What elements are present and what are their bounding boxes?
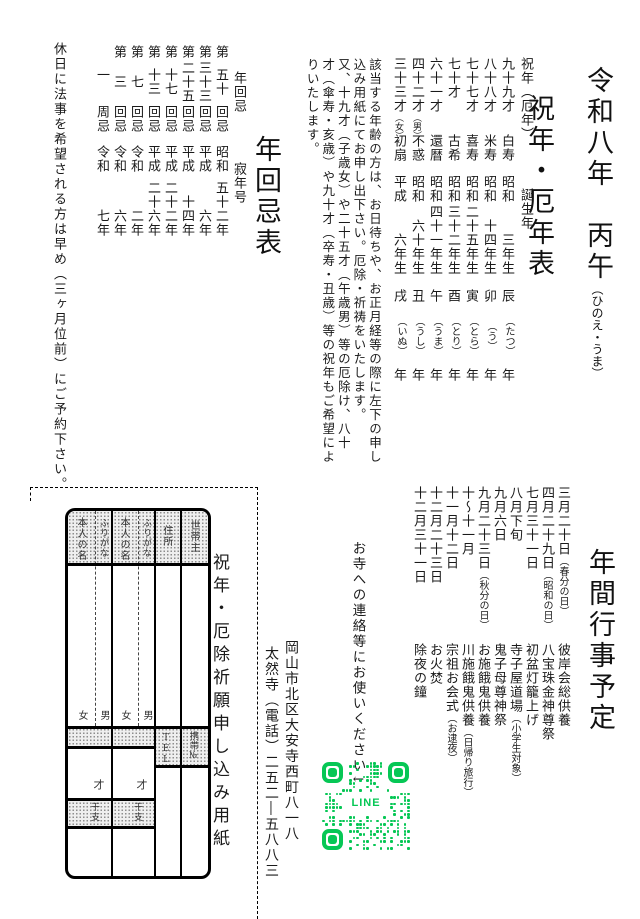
form-row-border [68, 726, 208, 729]
qr-module [363, 823, 366, 826]
zodiac-year: 戌（いぬ）年 [392, 289, 405, 382]
qr-module [383, 840, 386, 843]
event-date: 四月二十九日（昭和の日） [540, 486, 553, 630]
qr-module [359, 779, 362, 782]
kaiki-row: 第二十五回忌 平成十四年 [178, 45, 195, 245]
qr-module [325, 803, 328, 806]
qr-module [383, 833, 386, 836]
age-table-row: 七十才 古希 昭和三十二年生 酉（とり）年 [444, 57, 462, 392]
qr-module [370, 765, 373, 768]
age-value: 七十七才 [464, 57, 477, 113]
age-value: 六十一才 [428, 57, 441, 113]
qr-module [376, 772, 379, 775]
qr-module [349, 820, 352, 823]
birth-year: 昭和四十一年生 [428, 175, 441, 275]
temple-flyer-page: 令和八年 丙午（ひのえ・うま） 祝年・厄年表 祝年（厄年） 誕生年 九十九才 白… [0, 0, 640, 919]
qr-module [356, 830, 359, 833]
qr-module [329, 820, 332, 823]
qr-module [380, 772, 383, 775]
qr-module [366, 840, 369, 843]
zodiac-year: 寅（とら）年 [464, 289, 477, 382]
qr-module [370, 820, 373, 823]
qr-module [397, 844, 400, 847]
kaiki-name: 第五十回忌 [214, 45, 227, 133]
notice-paragraph: 該当する年齢の方は、お日待ちや、お正月経等の際に左下の申し 込み用紙にてお申し出… [304, 58, 382, 464]
qr-module [390, 796, 393, 799]
qr-module [366, 820, 369, 823]
qr-module [329, 816, 332, 819]
qr-module [349, 816, 352, 819]
event-date: 八月下旬 [508, 486, 521, 542]
qr-module [390, 840, 393, 843]
qr-module [373, 782, 376, 785]
qr-module [353, 782, 356, 785]
qr-module [325, 806, 328, 809]
qr-module [339, 823, 342, 826]
event-name: お施餓鬼供養 [476, 643, 489, 727]
age-table-row: 四十二才（男） 不惑 昭和六十年生 丑（うし）年 [408, 57, 426, 392]
kaiki-row: 第七回忌 令和二年 [127, 45, 144, 245]
kaiki-name: 第十三回忌 [146, 45, 159, 133]
qr-module [356, 837, 359, 840]
qr-module [380, 830, 383, 833]
kaiki-year: 令和二年 [129, 145, 142, 237]
event-date: 十～十一月 [460, 486, 473, 556]
age-table-row: 八十八才 米寿 昭和十四年生 卯（う）年 [480, 57, 498, 392]
qr-module [407, 799, 410, 802]
qr-module [366, 847, 369, 850]
qr-module [370, 833, 373, 836]
qr-module [390, 806, 393, 809]
qr-module [349, 830, 352, 833]
qr-module [390, 847, 393, 850]
qr-module [397, 820, 400, 823]
qr-module [363, 840, 366, 843]
qr-module [336, 806, 339, 809]
qr-module [363, 833, 366, 836]
zodiac-year: 酉（とり）年 [446, 289, 459, 382]
kaiki-row: 第三回忌 令和六年 [110, 45, 127, 245]
line-contact-note: お寺への連絡等にお使いください↓ [350, 541, 364, 787]
event-name: お火焚 [428, 643, 441, 685]
zodiac-year: 卯（う）年 [482, 289, 495, 382]
qr-module [370, 772, 373, 775]
form-label-furigana: ふりがな [141, 518, 150, 558]
age-table-row: 三十三才（女） 初扇 平成六年生 戌（いぬ）年 [390, 57, 408, 392]
qr-module [397, 823, 400, 826]
birth-year: 昭和六十年生 [410, 175, 423, 275]
qr-module [349, 765, 352, 768]
age-value: 七十才 [446, 57, 459, 99]
qr-module [407, 803, 410, 806]
qr-module [373, 833, 376, 836]
qr-module [407, 837, 410, 840]
age-table-row: 七十七才 喜寿 昭和二十五年生 寅（とら）年 [462, 57, 480, 392]
age-table-header-col: 祝年（厄年） 誕生年 [517, 57, 535, 392]
celebration-name: 不惑 [410, 134, 423, 162]
qr-module [363, 776, 366, 779]
qr-module [393, 820, 396, 823]
qr-module [404, 823, 407, 826]
form-label-furigana: ふりがな [98, 518, 107, 558]
form-col-border [154, 511, 156, 876]
qr-module [387, 820, 390, 823]
qr-module [376, 765, 379, 768]
age-table-header-top: 祝年（厄年） [519, 57, 532, 141]
qr-module [407, 810, 410, 813]
era-title: 令和八年 丙午（ひのえ・うま） [584, 66, 611, 379]
qr-module [332, 823, 335, 826]
qr-module [356, 844, 359, 847]
qr-module [400, 816, 403, 819]
event-item: 七月三十一日 初盆灯籠上げ [523, 486, 539, 906]
event-item: 九月二十三日（秋分の日） お施餓鬼供養 [475, 486, 491, 906]
qr-module [359, 823, 362, 826]
birth-year: 昭和三十二年生 [446, 175, 459, 275]
qr-module [376, 830, 379, 833]
event-date: 九月六日 [492, 486, 505, 542]
qr-module [397, 796, 400, 799]
qr-module [356, 769, 359, 772]
age-table-row: 六十一才 還暦 昭和四十一年生 午（うま）年 [426, 57, 444, 392]
event-item: 四月二十九日（昭和の日） 八宝珠金神尊祭 [539, 486, 555, 906]
temple-name-phone: 太然寺（電話）二五二―五八八三 [264, 646, 278, 879]
qr-module [373, 776, 376, 779]
qr-module [380, 765, 383, 768]
qr-module [390, 837, 393, 840]
qr-module [404, 827, 407, 830]
qr-module [353, 830, 356, 833]
qr-module [390, 803, 393, 806]
event-date: 十二月二十三日 [428, 486, 441, 584]
event-name: 鬼子母尊神祭 [492, 643, 505, 727]
qr-module [376, 827, 379, 830]
age-value: 九十九才 [500, 57, 513, 113]
qr-module [346, 820, 349, 823]
kaiki-row: 第五十回忌 昭和五十二年 [212, 45, 229, 245]
kaiki-header-col: 年回忌 寂年号 [230, 45, 247, 245]
qr-module [359, 820, 362, 823]
event-name: 除夜の鐘 [412, 643, 425, 699]
kaiki-name: 一周忌 [95, 45, 108, 133]
qr-module [387, 789, 390, 792]
qr-module [390, 820, 393, 823]
qr-module [363, 827, 366, 830]
kaiki-year: 平成十四年 [180, 145, 193, 237]
qr-module [356, 823, 359, 826]
qr-module [339, 820, 342, 823]
qr-module [393, 830, 396, 833]
age-table-header-bottom: 誕生年 [519, 188, 532, 230]
kaiki-year: 平成二十二年 [163, 145, 176, 237]
era-title-ruby: （ひのえ・うま） [590, 283, 604, 379]
qr-module [356, 762, 359, 765]
form-col-border [111, 511, 113, 876]
qr-module [373, 772, 376, 775]
kaiki-year: 昭和五十二年 [214, 145, 227, 237]
kaiki-name: 第二十五回忌 [180, 45, 193, 133]
kaiki-year: 令和七年 [95, 145, 108, 237]
zodiac-year: 午（うま）年 [428, 289, 441, 382]
birth-year: 平成六年生 [392, 175, 405, 275]
event-name: 八宝珠金神尊祭 [540, 643, 553, 741]
furigana-divider [95, 511, 96, 726]
qr-module [349, 840, 352, 843]
qr-module [400, 840, 403, 843]
form-gender-male: 男 [98, 710, 108, 721]
form-zodiac-label: 干支 [89, 802, 98, 822]
qr-module [383, 816, 386, 819]
qr-module [400, 803, 403, 806]
qr-module [370, 779, 373, 782]
zodiac-year: 丑（うし）年 [410, 289, 423, 382]
kaiki-name: 第七回忌 [129, 45, 142, 133]
event-date: 三月二十日（春分の日） [556, 486, 569, 616]
qr-module [349, 782, 352, 785]
qr-module [339, 793, 342, 796]
form-label-mobile: 携帯№ [188, 731, 197, 762]
form-gender-female: 女 [119, 710, 129, 721]
qr-module [376, 786, 379, 789]
qr-module [359, 789, 362, 792]
qr-module [370, 769, 373, 772]
celebration-name: 米寿 [482, 134, 495, 162]
qr-module [359, 827, 362, 830]
celebration-name: 古希 [446, 134, 459, 162]
qr-module [329, 799, 332, 802]
event-name: 寺子屋道場（小学生対象） [508, 643, 521, 783]
qr-module [393, 813, 396, 816]
qr-finder-pattern [388, 762, 409, 783]
qr-module [322, 820, 325, 823]
qr-module [336, 803, 339, 806]
form-row-border [68, 798, 154, 801]
kaiki-row: 第十七回忌 平成二十二年 [161, 45, 178, 245]
cutline-top [30, 487, 258, 488]
birth-year: 昭和二十五年生 [464, 175, 477, 275]
qr-module [400, 793, 403, 796]
qr-module [404, 833, 407, 836]
qr-module [353, 837, 356, 840]
qr-module [404, 837, 407, 840]
qr-module [366, 776, 369, 779]
qr-module [376, 776, 379, 779]
qr-module [383, 823, 386, 826]
form-row-border [68, 746, 154, 749]
qr-module [332, 803, 335, 806]
form-col-border [180, 511, 182, 876]
qr-module [390, 823, 393, 826]
qr-module [329, 803, 332, 806]
qr-module [397, 827, 400, 830]
qr-module [387, 830, 390, 833]
event-item: 十二月二十三日 お火焚 [427, 486, 443, 906]
event-item: 十～十一月 川施餓鬼供養（日帰り旅行） [459, 486, 475, 906]
age-value: 八十八才 [482, 57, 495, 113]
qr-module [359, 833, 362, 836]
birth-year: 昭和三年生 [500, 175, 513, 275]
qr-module [346, 789, 349, 792]
event-date: 十二月三十一日 [412, 486, 425, 584]
qr-module [404, 813, 407, 816]
qr-module [366, 816, 369, 819]
era-title-text: 令和八年 丙午 [582, 66, 613, 283]
qr-module [400, 810, 403, 813]
qr-module [370, 782, 373, 785]
qr-module [332, 810, 335, 813]
form-row-border [68, 563, 208, 566]
celebration-name: 初扇 [392, 134, 405, 162]
qr-module [336, 793, 339, 796]
qr-finder-pattern [322, 829, 343, 850]
qr-module [404, 796, 407, 799]
qr-module [332, 816, 335, 819]
qr-module [376, 837, 379, 840]
qr-module [332, 806, 335, 809]
event-item: 十二月三十一日 除夜の鐘 [411, 486, 427, 906]
qr-module [404, 799, 407, 802]
qr-module [380, 762, 383, 765]
qr-line-label: LINE [344, 795, 388, 810]
qr-module [380, 847, 383, 850]
qr-module [407, 847, 410, 850]
event-date: 十一月十二日 [444, 486, 457, 570]
qr-module [366, 827, 369, 830]
qr-module [373, 769, 376, 772]
celebration-name: 還暦 [428, 134, 441, 162]
qr-module [325, 823, 328, 826]
qr-module [393, 810, 396, 813]
qr-module [393, 796, 396, 799]
age-value: 四十二才（男） [410, 57, 423, 140]
qr-module [370, 789, 373, 792]
celebration-name: 喜寿 [464, 134, 477, 162]
qr-module [366, 765, 369, 768]
qr-module [373, 844, 376, 847]
form-label-householder: 世帯主 [188, 520, 198, 553]
kaiki-year: 平成二十六年 [146, 145, 159, 237]
event-date: 七月三十一日 [524, 486, 537, 570]
qr-module [353, 765, 356, 768]
event-name: 宗祖お会式（お逮夜） [444, 643, 457, 763]
qr-module [353, 816, 356, 819]
qr-module [325, 810, 328, 813]
kaiki-header-top: 年回忌 [232, 71, 245, 113]
qr-module [356, 827, 359, 830]
qr-module [397, 830, 400, 833]
qr-module [349, 847, 352, 850]
qr-module [363, 847, 366, 850]
zodiac-year: 辰（たつ）年 [500, 289, 513, 382]
qr-finder-pattern [322, 762, 343, 783]
qr-module [329, 806, 332, 809]
qr-module [376, 820, 379, 823]
form-label-address: 住所 [161, 525, 171, 547]
qr-module [339, 806, 342, 809]
cutline-right [257, 487, 258, 919]
qr-module [366, 779, 369, 782]
furigana-divider [138, 511, 139, 726]
qr-module [370, 762, 373, 765]
event-item: 八月下旬 寺子屋道場（小学生対象） [507, 486, 523, 906]
qr-module [404, 793, 407, 796]
qr-module [400, 844, 403, 847]
qr-module [407, 840, 410, 843]
qr-module [380, 823, 383, 826]
qr-module [370, 830, 373, 833]
form-zodiac-label: 干支 [132, 802, 141, 822]
kaiki-name: 第十七回忌 [163, 45, 176, 133]
qr-module [407, 830, 410, 833]
qr-module [373, 762, 376, 765]
event-item: 三月二十日（春分の日） 彼岸会総供養 [555, 486, 571, 906]
age-table-row: 九十九才 白寿 昭和三年生 辰（たつ）年 [498, 57, 516, 392]
qr-module [349, 823, 352, 826]
qr-module [397, 833, 400, 836]
form-row-border [68, 826, 154, 829]
qr-module [329, 793, 332, 796]
qr-module [363, 844, 366, 847]
holiday-note: 休日に法事を希望される方は早め（三ヶ月位前）にご予約下さい。 [52, 42, 65, 492]
qr-module [404, 803, 407, 806]
form-age-label: 才 [93, 779, 104, 791]
kaiki-header-bottom: 寂年号 [232, 162, 245, 204]
kaiki-year: 平成六年 [197, 145, 210, 237]
form-gender-male: 男 [141, 710, 151, 721]
qr-module [353, 786, 356, 789]
qr-module [383, 837, 386, 840]
qr-module [329, 796, 332, 799]
qr-module [380, 840, 383, 843]
qr-module [366, 786, 369, 789]
event-item: 九月六日 鬼子母尊神祭 [491, 486, 507, 906]
celebration-name: 白寿 [500, 134, 513, 162]
qr-module [332, 799, 335, 802]
form-label-tel: TEL [161, 733, 170, 766]
qr-module [349, 789, 352, 792]
event-name: 初盆灯籠上げ [524, 643, 537, 727]
event-date: 九月二十三日（秋分の日） [476, 486, 489, 630]
section-title-events: 年間行事予定 [586, 548, 613, 734]
qr-module [332, 820, 335, 823]
qr-module [393, 803, 396, 806]
event-name: 彼岸会総供養 [556, 643, 569, 727]
qr-module [387, 847, 390, 850]
qr-module [373, 765, 376, 768]
qr-module [407, 816, 410, 819]
qr-module [325, 793, 328, 796]
kaiki-name: 第三十三回忌 [197, 45, 210, 133]
qr-module [407, 793, 410, 796]
form-title: 祝年・厄除祈願申し込み用紙 [210, 553, 227, 852]
qr-module [349, 772, 352, 775]
qr-module [370, 776, 373, 779]
cutline-left-stub [30, 487, 31, 501]
kaiki-name: 第三回忌 [112, 45, 125, 133]
form-gender-female: 女 [76, 710, 86, 721]
event-item: 十一月十二日 宗祖お会式（お逮夜） [443, 486, 459, 906]
age-value: 三十三才（女） [392, 57, 405, 140]
qr-module [407, 813, 410, 816]
qr-module [404, 840, 407, 843]
qr-module [404, 830, 407, 833]
qr-module [387, 827, 390, 830]
temple-address: 岡山市北区大安寺西町八一八 [284, 640, 298, 842]
qr-module [342, 789, 345, 792]
kaiki-row: 一周忌 令和七年 [93, 45, 110, 245]
qr-module [380, 827, 383, 830]
qr-module [376, 769, 379, 772]
